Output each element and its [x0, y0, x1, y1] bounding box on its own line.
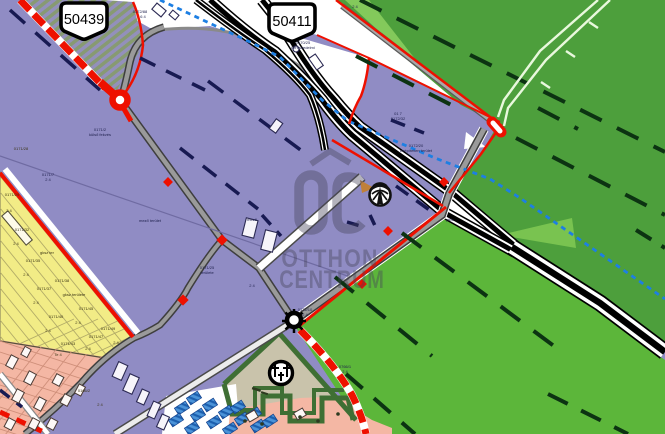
svg-text:2 4: 2 4 — [249, 283, 255, 288]
svg-text:0171/43: 0171/43 — [61, 341, 76, 346]
svg-text:2 4: 2 4 — [302, 312, 308, 317]
svg-text:0171/40: 0171/40 — [49, 314, 64, 319]
svg-text:0171/28: 0171/28 — [14, 146, 29, 151]
svg-text:0171/38: 0171/38 — [55, 278, 70, 283]
svg-text:0172/32: 0172/32 — [391, 116, 406, 121]
svg-text:2 4: 2 4 — [45, 177, 51, 182]
svg-text:2 4: 2 4 — [97, 402, 103, 407]
svg-text:mező: mező — [247, 217, 258, 222]
svg-text:Te 4: Te 4 — [54, 352, 62, 357]
svg-text:0171/49: 0171/49 — [101, 326, 116, 331]
svg-text:2 4: 2 4 — [342, 369, 348, 374]
svg-text:gksz területe: gksz területe — [63, 292, 86, 297]
svg-text:CENTRUM: CENTRUM — [279, 266, 385, 294]
svg-text:2 4: 2 4 — [13, 241, 19, 246]
svg-text:0171/37: 0171/37 — [37, 286, 52, 291]
svg-text:2 4: 2 4 — [113, 340, 119, 345]
svg-text:kereskedelmi: kereskedelmi — [291, 45, 315, 50]
svg-text:gksz ter: gksz ter — [40, 250, 55, 255]
svg-text:2 4: 2 4 — [352, 4, 358, 9]
svg-text:2 4: 2 4 — [45, 328, 51, 333]
svg-text:50411: 50411 — [272, 14, 311, 30]
svg-text:mező terület: mező terület — [139, 218, 162, 223]
svg-text:2 4: 2 4 — [23, 272, 29, 277]
svg-text:területe: területe — [200, 270, 214, 275]
svg-text:0166/2: 0166/2 — [78, 388, 91, 393]
svg-text:2 4: 2 4 — [33, 300, 39, 305]
svg-text:2 4: 2 4 — [85, 346, 91, 351]
svg-text:0171/35: 0171/35 — [26, 258, 41, 263]
svg-text:0171/45: 0171/45 — [79, 306, 94, 311]
svg-text:0171/29: 0171/29 — [5, 192, 20, 197]
svg-text:2 4: 2 4 — [75, 320, 81, 325]
svg-text:50439: 50439 — [64, 12, 104, 28]
svg-text:külső fekvés: külső fekvés — [89, 132, 111, 137]
svg-text:6 4: 6 4 — [140, 14, 146, 19]
svg-text:pkfs: pkfs — [446, 217, 453, 222]
svg-text:0171/32: 0171/32 — [15, 227, 30, 232]
svg-text:2 4: 2 4 — [6, 208, 12, 213]
svg-text:beépítetlen terület: beépítetlen terület — [400, 148, 433, 153]
svg-text:0171/47: 0171/47 — [89, 334, 104, 339]
